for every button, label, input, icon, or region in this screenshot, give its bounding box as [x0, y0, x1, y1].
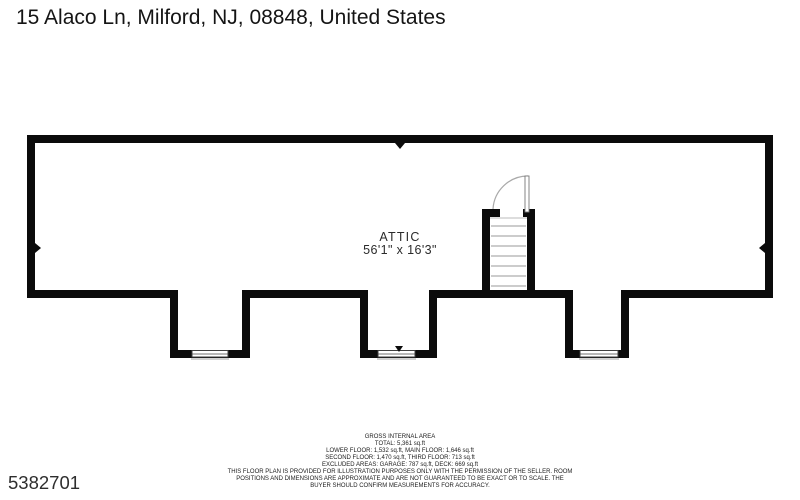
disclaimer-line: POSITIONS AND DIMENSIONS ARE APPROXIMATE…	[0, 476, 800, 483]
disclaimer-line: THIS FLOOR PLAN IS PROVIDED FOR ILLUSTRA…	[0, 469, 800, 476]
room-label: ATTIC 56'1" x 16'3"	[300, 231, 500, 257]
area-excluded: EXCLUDED AREAS: GARAGE: 787 sq.ft, DECK:…	[0, 462, 800, 469]
disclaimer-line: BUYER SHOULD CONFIRM MEASUREMENTS FOR AC…	[0, 483, 800, 490]
area-summary-heading: GROSS INTERNAL AREA	[0, 434, 800, 441]
area-summary: GROSS INTERNAL AREA TOTAL: 5,361 sq.ft L…	[0, 434, 800, 490]
door-leaf	[525, 176, 529, 212]
stairwell-right-wall	[527, 209, 535, 298]
area-second-third: SECOND FLOOR: 1,470 sq.ft, THIRD FLOOR: …	[0, 455, 800, 462]
stairwell-top-left-nub	[482, 209, 500, 217]
floor-plan-page: 15 Alaco Ln, Milford, NJ, 08848, United …	[0, 0, 800, 500]
area-total: TOTAL: 5,361 sq.ft	[0, 441, 800, 448]
area-lower-main: LOWER FLOOR: 1,532 sq.ft, MAIN FLOOR: 1,…	[0, 448, 800, 455]
room-dimensions: 56'1" x 16'3"	[300, 244, 500, 257]
photo-id: 5382701	[8, 472, 80, 494]
